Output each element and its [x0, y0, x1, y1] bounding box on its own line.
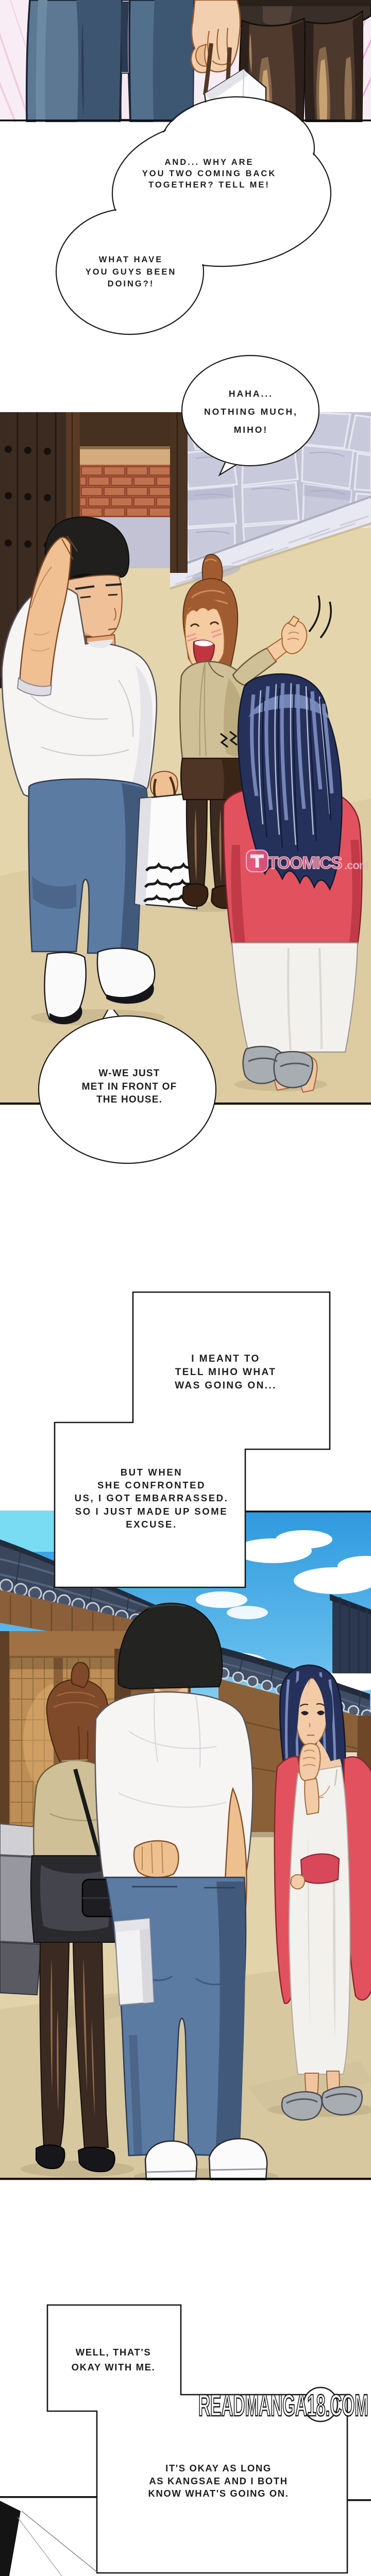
svg-text:READMANGA18.COM: READMANGA18.COM: [198, 2389, 368, 2423]
svg-text:TOOMICS: TOOMICS: [268, 853, 342, 872]
svg-text:.com: .com: [344, 859, 369, 872]
